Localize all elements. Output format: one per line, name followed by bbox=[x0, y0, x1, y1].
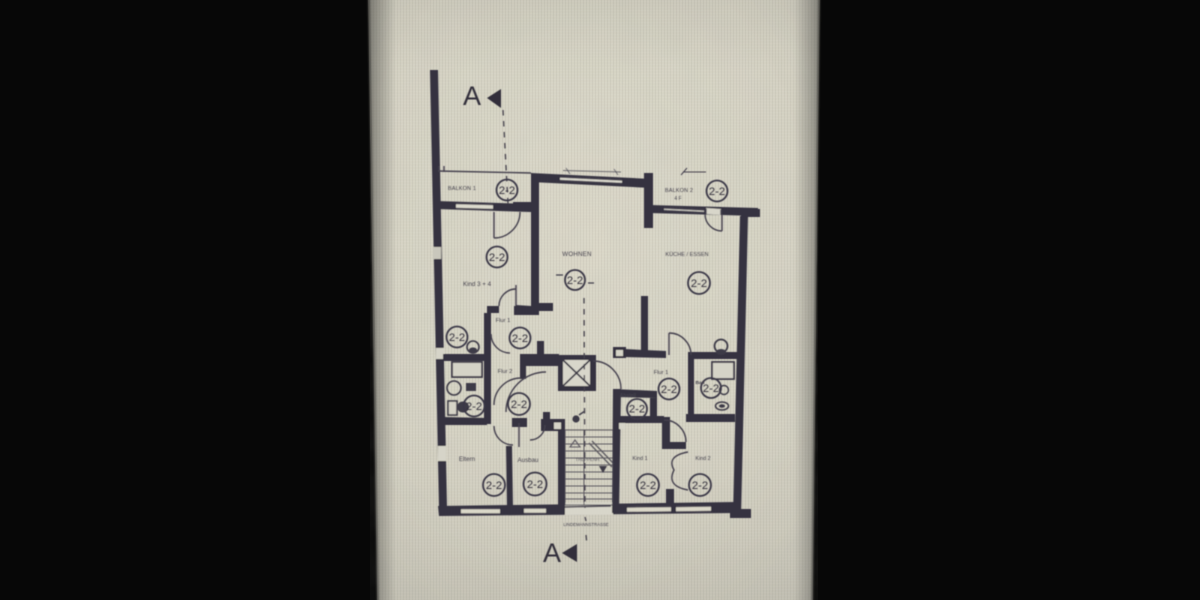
svg-text:2-2: 2-2 bbox=[567, 275, 583, 287]
svg-text:KÜCHE / ESSEN: KÜCHE / ESSEN bbox=[665, 251, 708, 258]
svg-text:2-2: 2-2 bbox=[692, 480, 708, 492]
svg-text:Bad: Bad bbox=[695, 380, 704, 386]
svg-text:2-2: 2-2 bbox=[640, 480, 656, 492]
svg-text:Eltern: Eltern bbox=[459, 456, 476, 463]
svg-text:Kind 3 + 4: Kind 3 + 4 bbox=[463, 281, 492, 288]
svg-text:A: A bbox=[543, 538, 561, 568]
svg-text:A: A bbox=[463, 81, 481, 111]
svg-text:2-2: 2-2 bbox=[486, 480, 502, 492]
svg-text:2-2: 2-2 bbox=[527, 479, 543, 491]
svg-text:TREPPENH.: TREPPENH. bbox=[575, 457, 600, 462]
svg-text:BALKON 1: BALKON 1 bbox=[448, 186, 476, 192]
svg-text:2-2: 2-2 bbox=[709, 186, 725, 198]
svg-text:4 F: 4 F bbox=[674, 196, 681, 202]
svg-text:2-2: 2-2 bbox=[512, 333, 528, 345]
svg-text:2-2: 2-2 bbox=[703, 383, 719, 395]
svg-text:WOHNEN: WOHNEN bbox=[562, 251, 591, 258]
svg-text:Flur 2: Flur 2 bbox=[498, 369, 513, 375]
svg-text:Ausbau: Ausbau bbox=[518, 457, 540, 464]
svg-text:2-2: 2-2 bbox=[691, 278, 707, 290]
svg-text:Abstell: Abstell bbox=[620, 393, 637, 399]
svg-text:Flur 1: Flur 1 bbox=[654, 370, 669, 376]
svg-text:Flur 1: Flur 1 bbox=[496, 318, 511, 324]
svg-text:2-2: 2-2 bbox=[449, 332, 465, 344]
svg-text:2-2: 2-2 bbox=[466, 401, 482, 413]
svg-text:Kind 1: Kind 1 bbox=[632, 456, 647, 462]
svg-text:2-2: 2-2 bbox=[511, 399, 527, 411]
svg-text:2-2: 2-2 bbox=[499, 185, 515, 197]
svg-text:2-2: 2-2 bbox=[629, 404, 645, 416]
svg-text:BALKON 2: BALKON 2 bbox=[665, 188, 693, 194]
svg-text:LINDEMANNSTRASSE: LINDEMANNSTRASSE bbox=[563, 522, 608, 527]
svg-text:2-2: 2-2 bbox=[489, 252, 505, 264]
svg-text:Kind 2: Kind 2 bbox=[695, 456, 710, 462]
svg-text:2-2: 2-2 bbox=[661, 384, 677, 396]
